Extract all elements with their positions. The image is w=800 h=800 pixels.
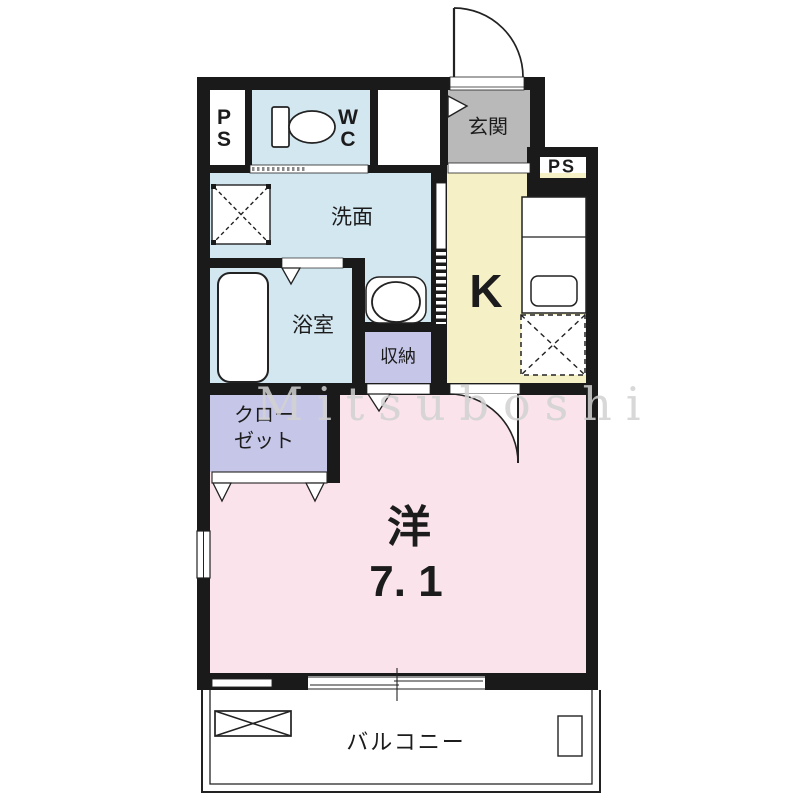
- bath-door-marker-icon: [282, 268, 300, 284]
- label-ps-top: P S: [217, 107, 231, 151]
- toilet-tank-icon: [272, 107, 289, 147]
- label-washroom: 洗面: [331, 207, 373, 229]
- basin-bowl-icon: [372, 282, 420, 322]
- washer-corner-mark: [211, 240, 216, 245]
- label-ps-right: PS: [548, 158, 576, 177]
- label-main-room-type: 洋: [387, 505, 431, 551]
- balcony-drain-box: [558, 716, 582, 756]
- watermark-text: Mitsuboshi: [256, 377, 655, 431]
- bath-door-slot: [282, 258, 343, 268]
- entrance-threshold: [450, 77, 524, 90]
- label-bathroom: 浴室: [292, 315, 334, 337]
- label-entrance: 玄関: [468, 118, 508, 139]
- closet-door-marker-icon: [213, 483, 231, 501]
- floorplan-canvas: P S W C 玄関 PS 洗面 浴室 収納 K クロー ゼット 洋 7. 1 …: [0, 0, 800, 800]
- label-storage: 収納: [380, 348, 416, 367]
- bottom-left-window: [212, 679, 272, 687]
- washer-corner-mark: [266, 184, 271, 189]
- label-balcony: バルコニー: [346, 730, 466, 753]
- entrance-step-strip: [448, 163, 530, 173]
- washer-corner-mark: [266, 240, 271, 245]
- label-kitchen: K: [469, 267, 502, 315]
- entrance-door-arc: [454, 8, 523, 77]
- closet-door-marker-icon: [306, 483, 324, 501]
- entrance-step-arrow-icon: [448, 96, 467, 117]
- washroom-kitchen-door: [436, 183, 446, 249]
- washer-corner-mark: [211, 184, 216, 189]
- label-main-room-size: 7. 1: [369, 559, 442, 605]
- bathtub-icon: [218, 273, 268, 382]
- toilet-bowl-icon: [289, 111, 335, 143]
- label-wc: W C: [338, 107, 358, 151]
- closet-threshold: [212, 472, 327, 483]
